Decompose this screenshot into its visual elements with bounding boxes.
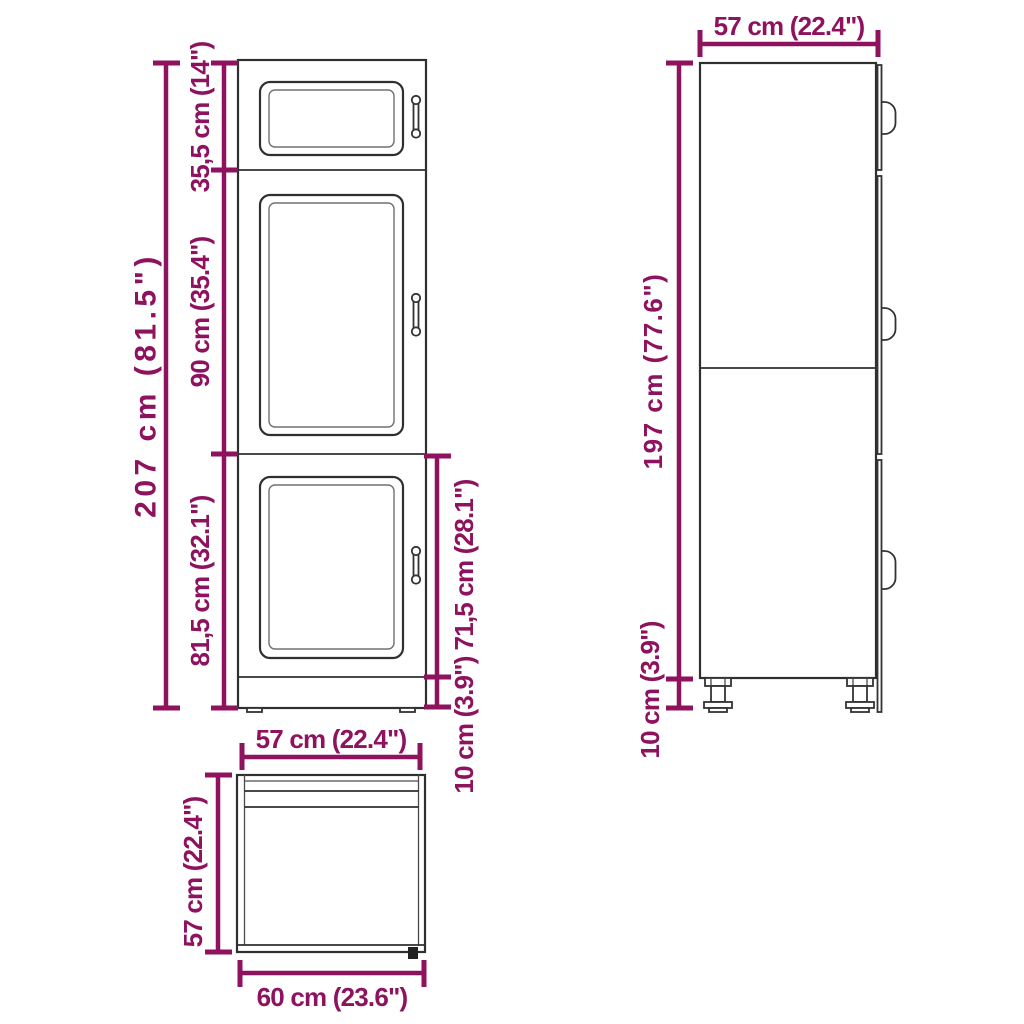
label-front-lower-section: 81,5 cm (32.1") <box>185 495 215 666</box>
label-front-upper-section: 35,5 cm (14") <box>185 41 215 192</box>
front-right-foot <box>400 708 415 712</box>
label-front-total-height: 207 cm (81.5") <box>130 252 163 518</box>
dimension-side-height: 197 cm (77.6") 10 cm (3.9") <box>635 63 693 759</box>
label-front-plinth: 10 cm (3.9") <box>449 656 479 793</box>
diagram-svg: 207 cm (81.5") 35,5 cm (14") 90 cm (35.4… <box>0 0 1024 1024</box>
front-bottom-door <box>260 477 420 658</box>
label-top-side-depth: 57 cm (22.4") <box>178 796 208 947</box>
top-handle-icon <box>408 947 418 959</box>
dimension-front-total-height: 207 cm (81.5") <box>130 63 181 708</box>
dimension-side-depth: 57 cm (22.4") <box>700 11 878 57</box>
label-side-depth: 57 cm (22.4") <box>714 11 865 41</box>
label-front-middle-section: 90 cm (35.4") <box>185 236 215 387</box>
bottom-door-handle-icon <box>412 547 420 584</box>
label-top-total-depth: 60 cm (23.6") <box>257 982 408 1012</box>
label-side-leg-height: 10 cm (3.9") <box>635 621 665 758</box>
front-view <box>238 60 426 712</box>
dimension-top-width: 57 cm (22.4") <box>242 724 420 770</box>
label-front-lower-door: 71,5 cm (28.1") <box>449 479 479 650</box>
dimension-top-side-depth: 57 cm (22.4") <box>178 775 232 952</box>
side-view <box>700 63 896 712</box>
dimension-top-total-depth: 60 cm (23.6") <box>240 960 424 1012</box>
side-bottom-handle-icon <box>881 551 896 589</box>
side-door-edge-top <box>878 65 882 170</box>
side-rear-leg <box>846 678 874 712</box>
top-cabinet-body <box>237 775 425 952</box>
front-middle-door <box>260 195 420 435</box>
bottom-door-frame-inner <box>269 485 394 649</box>
middle-door-frame-inner <box>269 203 394 427</box>
side-top-handle-icon <box>881 102 896 134</box>
front-top-door <box>260 82 420 155</box>
side-door-edge-middle <box>878 176 882 454</box>
side-cabinet-body <box>700 63 876 678</box>
top-view <box>237 775 425 959</box>
side-middle-handle-icon <box>881 308 896 340</box>
label-top-width: 57 cm (22.4") <box>256 724 407 754</box>
dimension-front-sections: 35,5 cm (14") 90 cm (35.4") 81,5 cm (32.… <box>185 41 238 708</box>
side-front-leg <box>704 678 732 712</box>
dimension-front-right: 71,5 cm (28.1") 10 cm (3.9") <box>424 456 479 794</box>
label-side-body-height: 197 cm (77.6") <box>638 273 668 470</box>
top-door-handle-icon <box>412 96 420 138</box>
front-left-foot <box>247 708 262 712</box>
middle-door-handle-icon <box>412 294 420 336</box>
top-door-frame-inner <box>269 90 394 147</box>
side-door-edge-bottom <box>878 460 882 712</box>
cabinet-dimension-diagram: 207 cm (81.5") 35,5 cm (14") 90 cm (35.4… <box>0 0 1024 1024</box>
